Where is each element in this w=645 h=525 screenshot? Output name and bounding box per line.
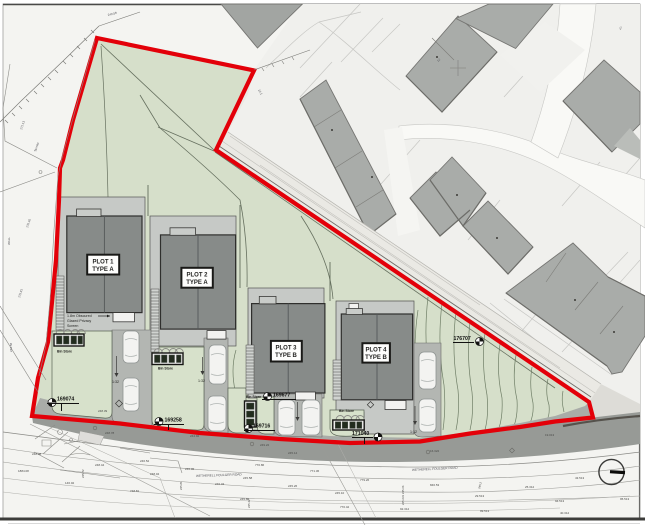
svg-text:PLOT 4: PLOT 4 bbox=[365, 348, 387, 354]
svg-text:169716: 169716 bbox=[253, 424, 270, 430]
svg-text:40.312: 40.312 bbox=[560, 511, 570, 515]
svg-text:99.513: 99.513 bbox=[480, 509, 490, 513]
svg-text:245.72: 245.72 bbox=[81, 469, 85, 478]
svg-text:171040: 171040 bbox=[352, 431, 369, 437]
svg-text:246.52: 246.52 bbox=[140, 459, 150, 463]
svg-text:WALL: WALL bbox=[7, 237, 11, 245]
svg-text:169677: 169677 bbox=[273, 393, 290, 399]
svg-text:16.322: 16.322 bbox=[430, 449, 440, 453]
svg-text:1.8m Obscured: 1.8m Obscured bbox=[67, 314, 92, 318]
svg-text:246.34: 246.34 bbox=[215, 482, 225, 486]
svg-text:TYPE A: TYPE A bbox=[186, 280, 208, 286]
svg-text:1:32: 1:32 bbox=[112, 380, 119, 384]
svg-text:245.58: 245.58 bbox=[243, 476, 253, 480]
svg-text:169074: 169074 bbox=[57, 397, 74, 403]
svg-text:92.312: 92.312 bbox=[400, 507, 410, 511]
svg-text:PLOT 2: PLOT 2 bbox=[186, 273, 208, 279]
svg-text:846.53: 846.53 bbox=[430, 483, 440, 487]
svg-text:779.26: 779.26 bbox=[360, 478, 370, 482]
svg-text:146.02: 146.02 bbox=[65, 481, 75, 485]
svg-text:169258: 169258 bbox=[165, 418, 182, 424]
svg-text:1:12: 1:12 bbox=[410, 430, 417, 434]
svg-text:770.86: 770.86 bbox=[255, 463, 265, 467]
svg-text:43.513: 43.513 bbox=[575, 476, 585, 480]
svg-text:TYPE A: TYPE A bbox=[92, 267, 114, 273]
svg-text:245.14: 245.14 bbox=[288, 451, 298, 455]
svg-text:770.42: 770.42 bbox=[340, 505, 350, 509]
svg-text:95.513: 95.513 bbox=[620, 497, 630, 501]
svg-text:1884.08: 1884.08 bbox=[18, 469, 29, 473]
svg-text:748.81: 748.81 bbox=[130, 489, 140, 493]
svg-text:TYPE B: TYPE B bbox=[365, 355, 387, 361]
svg-text:245.10: 245.10 bbox=[335, 491, 345, 495]
svg-text:771.36: 771.36 bbox=[310, 469, 320, 473]
svg-text:PLOT 3: PLOT 3 bbox=[275, 346, 297, 352]
svg-text:248.44: 248.44 bbox=[95, 463, 105, 467]
svg-text:TYPE B: TYPE B bbox=[275, 353, 297, 359]
svg-text:94.513: 94.513 bbox=[555, 499, 565, 503]
svg-text:248.08: 248.08 bbox=[32, 452, 42, 456]
svg-text:Bin Store: Bin Store bbox=[158, 367, 173, 371]
svg-text:176707: 176707 bbox=[454, 336, 471, 342]
svg-text:245.42: 245.42 bbox=[247, 499, 251, 508]
svg-text:PLOT 1: PLOT 1 bbox=[92, 260, 114, 266]
svg-text:246.36: 246.36 bbox=[185, 467, 195, 471]
svg-text:1:32: 1:32 bbox=[198, 379, 205, 383]
svg-text:Bin Store: Bin Store bbox=[339, 409, 354, 413]
svg-text:248.04: 248.04 bbox=[150, 472, 160, 476]
svg-text:245.26: 245.26 bbox=[288, 484, 298, 488]
svg-text:Screen: Screen bbox=[67, 324, 78, 328]
svg-text:249.22: 249.22 bbox=[260, 443, 270, 447]
svg-text:249.58: 249.58 bbox=[9, 342, 13, 352]
svg-text:245.81: 245.81 bbox=[179, 481, 183, 490]
svg-text:25.312: 25.312 bbox=[525, 485, 535, 489]
svg-text:248.78: 248.78 bbox=[105, 431, 115, 435]
svg-text:19.013: 19.013 bbox=[545, 433, 555, 437]
svg-text:244.92: 244.92 bbox=[190, 434, 200, 438]
svg-text:Bin Store: Bin Store bbox=[57, 350, 72, 354]
svg-text:248.39: 248.39 bbox=[98, 409, 108, 413]
svg-text:29.513: 29.513 bbox=[475, 494, 485, 498]
svg-text:245.631 245.66: 245.631 245.66 bbox=[401, 485, 405, 505]
svg-text:Glazed Privacy: Glazed Privacy bbox=[67, 319, 91, 323]
svg-text:Bin Store: Bin Store bbox=[246, 395, 261, 399]
